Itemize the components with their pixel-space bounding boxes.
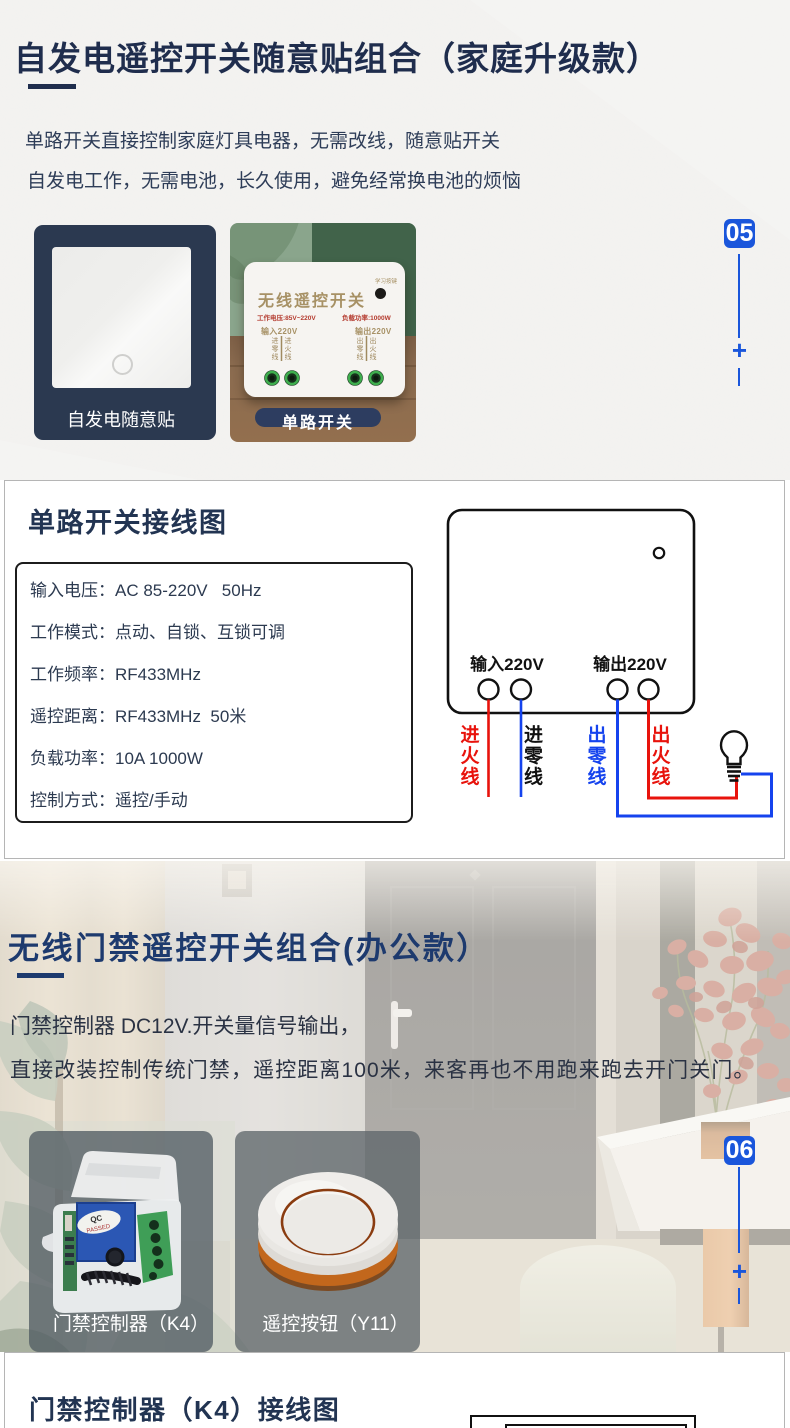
svg-text:出火线: 出火线 (651, 723, 671, 788)
svg-text:进火线: 进火线 (460, 724, 480, 788)
svg-text:出零线: 出零线 (586, 723, 607, 788)
svg-text:输入220V: 输入220V (470, 654, 544, 674)
svg-text:输出220V: 输出220V (593, 654, 667, 674)
svg-text:进零线: 进零线 (523, 724, 544, 788)
